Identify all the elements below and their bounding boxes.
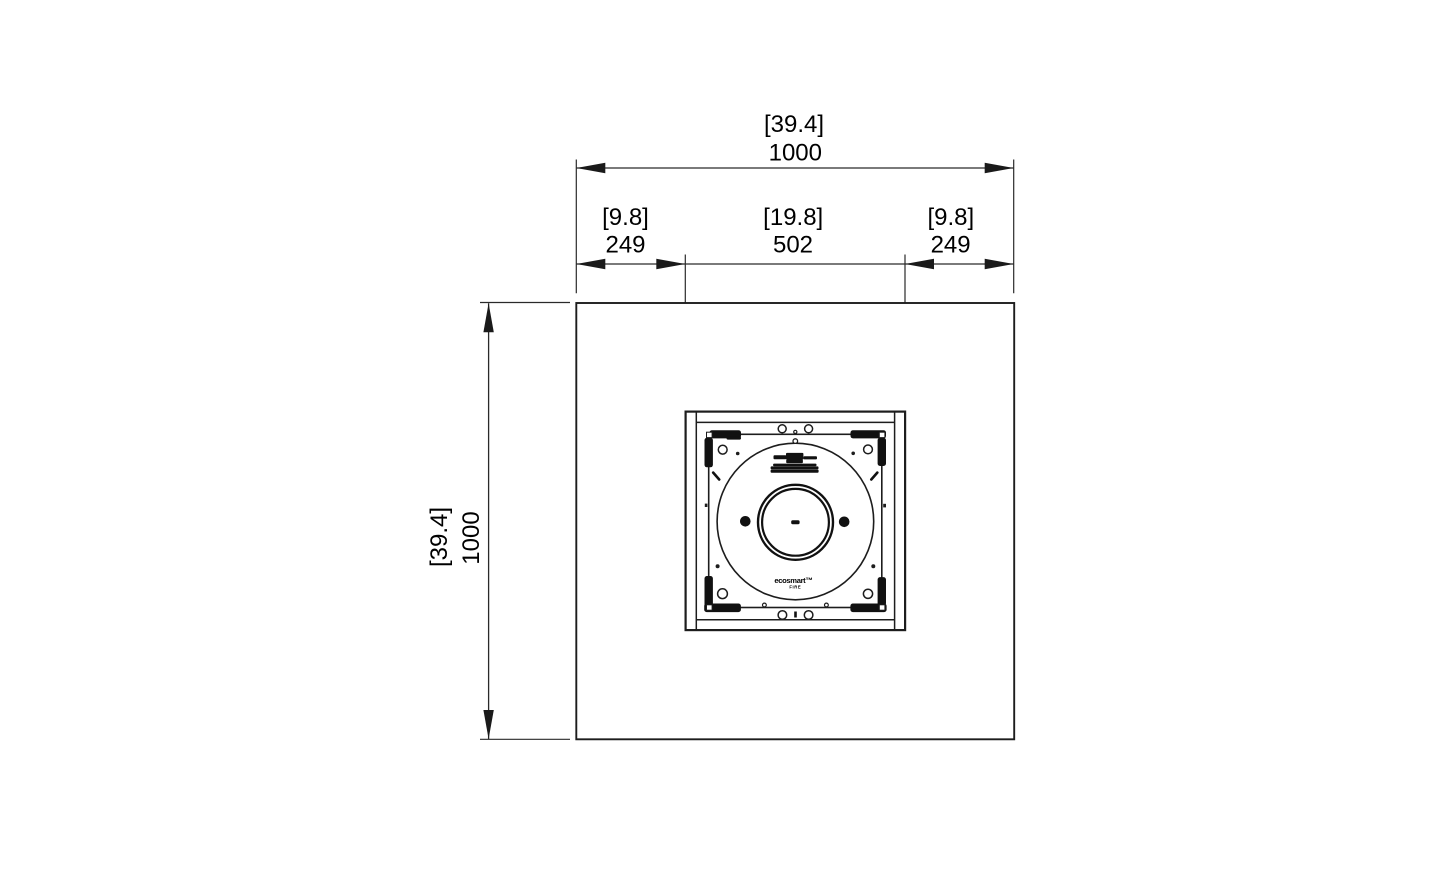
svg-text:FIRE: FIRE — [789, 585, 801, 590]
svg-text:[9.8]: [9.8] — [927, 204, 974, 231]
svg-text:502: 502 — [773, 232, 813, 259]
svg-text:1000: 1000 — [769, 140, 822, 167]
svg-text:249: 249 — [931, 232, 971, 259]
svg-text:[39.4]: [39.4] — [764, 111, 824, 138]
svg-text:[39.4]: [39.4] — [426, 507, 453, 567]
svg-text:[9.8]: [9.8] — [602, 204, 649, 231]
svg-text:249: 249 — [605, 232, 645, 259]
svg-text:1000: 1000 — [458, 511, 485, 564]
svg-text:[19.8]: [19.8] — [763, 204, 823, 231]
